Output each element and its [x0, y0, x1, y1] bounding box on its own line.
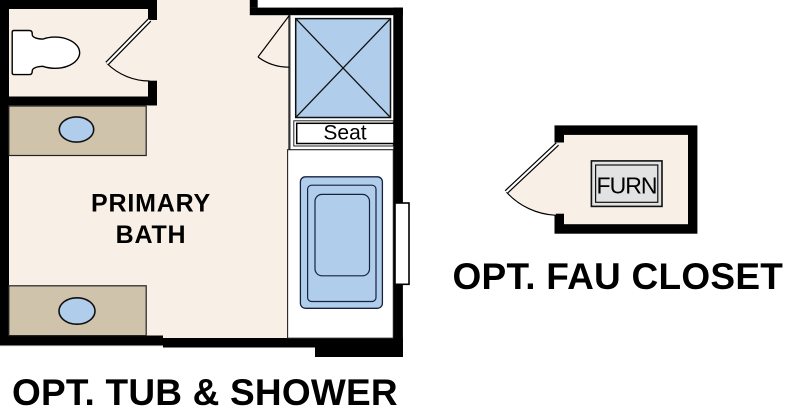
- svg-text:PRIMARY: PRIMARY: [91, 190, 211, 218]
- svg-text:FURN: FURN: [597, 172, 657, 198]
- svg-text:Seat: Seat: [323, 122, 366, 145]
- svg-text:BATH: BATH: [116, 221, 187, 249]
- svg-text:OPT. TUB & SHOWER: OPT. TUB & SHOWER: [12, 372, 398, 413]
- svg-text:OPT. FAU CLOSET: OPT. FAU CLOSET: [453, 256, 784, 297]
